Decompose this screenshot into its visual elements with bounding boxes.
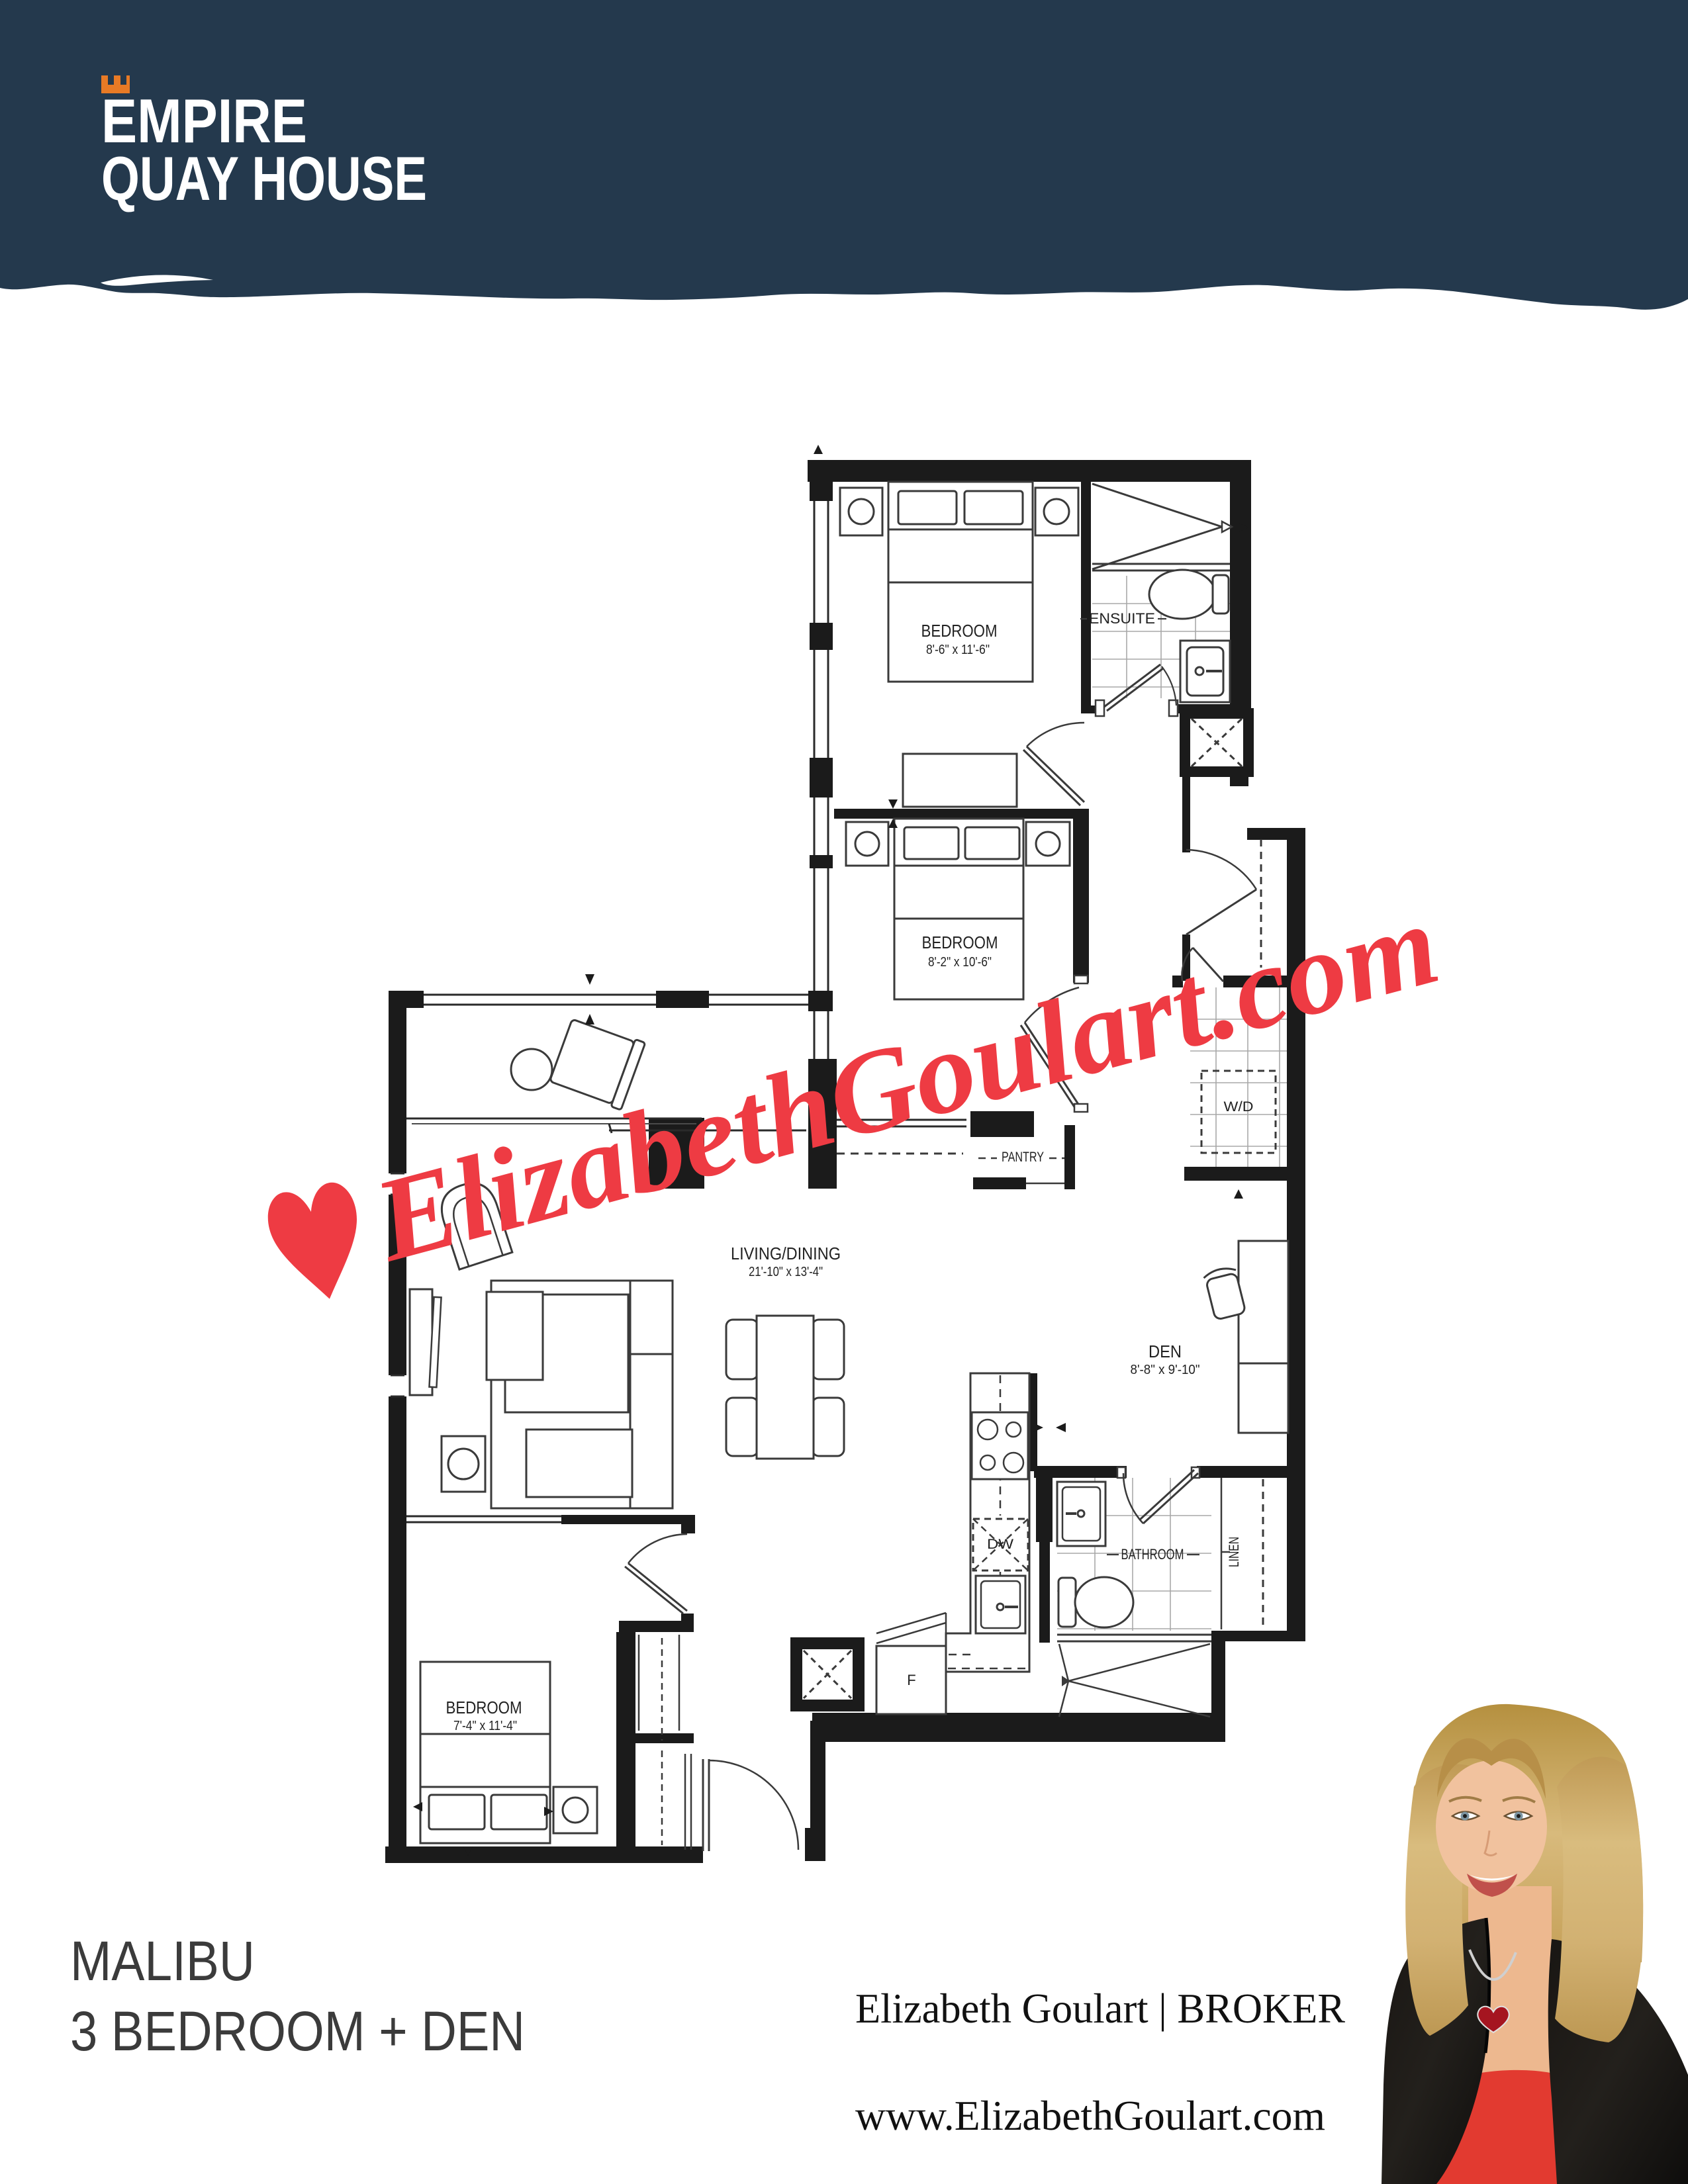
svg-text:DW: DW: [987, 1537, 1013, 1552]
svg-text:F: F: [907, 1672, 915, 1688]
svg-text:MALIBU: MALIBU: [70, 1930, 255, 1992]
svg-text:8'-8" x 9'-10": 8'-8" x 9'-10": [1131, 1363, 1200, 1377]
svg-text:8'-2" x 10'-6": 8'-2" x 10'-6": [928, 955, 992, 970]
svg-text:BATHROOM: BATHROOM: [1121, 1546, 1184, 1563]
svg-text:Elizabeth Goulart | BROKER: Elizabeth Goulart | BROKER: [855, 1985, 1345, 2032]
svg-text:W/D: W/D: [1224, 1099, 1254, 1115]
svg-text:DEN: DEN: [1149, 1342, 1182, 1361]
svg-text:QUAY HOUSE: QUAY HOUSE: [101, 144, 427, 213]
svg-text:LIVING/DINING: LIVING/DINING: [731, 1244, 841, 1263]
svg-text:7'-4" x 11'-4": 7'-4" x 11'-4": [453, 1719, 517, 1733]
svg-text:3 BEDROOM + DEN: 3 BEDROOM + DEN: [70, 2000, 525, 2062]
svg-text:ENSUITE: ENSUITE: [1089, 610, 1155, 627]
svg-text:BEDROOM: BEDROOM: [921, 621, 998, 641]
svg-text:BEDROOM: BEDROOM: [922, 933, 998, 952]
svg-text:BEDROOM: BEDROOM: [446, 1698, 522, 1717]
svg-text:PANTRY: PANTRY: [1002, 1150, 1044, 1165]
svg-text:www.ElizabethGoulart.com: www.ElizabethGoulart.com: [855, 2092, 1325, 2139]
svg-text:8'-6" x 11'-6": 8'-6" x 11'-6": [926, 643, 990, 657]
svg-text:LINEN: LINEN: [1227, 1537, 1242, 1567]
svg-text:21'-10" x 13'-4": 21'-10" x 13'-4": [749, 1265, 823, 1279]
